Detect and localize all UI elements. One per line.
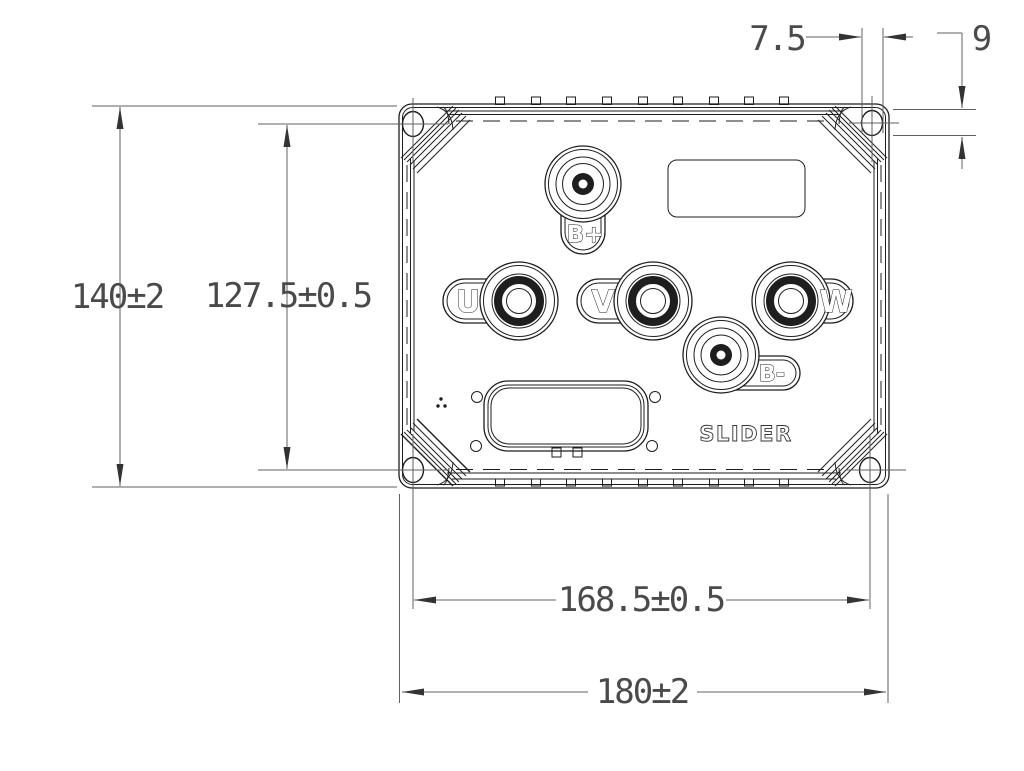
dim-slot-hole-height: 9 xyxy=(972,19,991,59)
dim-slot-hole-width: 7.5 xyxy=(749,19,804,59)
terminal-label-b-plus: B+ xyxy=(567,222,604,248)
controller-dimension-drawing: B+ U V W B- xyxy=(0,0,1024,771)
terminal-label-v: V xyxy=(591,285,615,320)
terminal-label-u: U xyxy=(456,285,480,320)
terminal-label-w: W xyxy=(819,285,852,320)
dim-bolt-span-height: 127.5±0.5 xyxy=(205,276,371,316)
brand-logo: SLIDER xyxy=(699,422,792,446)
dim-overall-height: 140±2 xyxy=(71,277,163,317)
drawing-canvas: B+ U V W B- xyxy=(0,0,1024,771)
dim-bolt-span-width: 168.5±0.5 xyxy=(558,580,724,620)
terminal-label-b-minus: B- xyxy=(759,362,785,387)
dim-overall-width: 180±2 xyxy=(596,672,688,712)
signal-connector-port xyxy=(471,381,661,457)
